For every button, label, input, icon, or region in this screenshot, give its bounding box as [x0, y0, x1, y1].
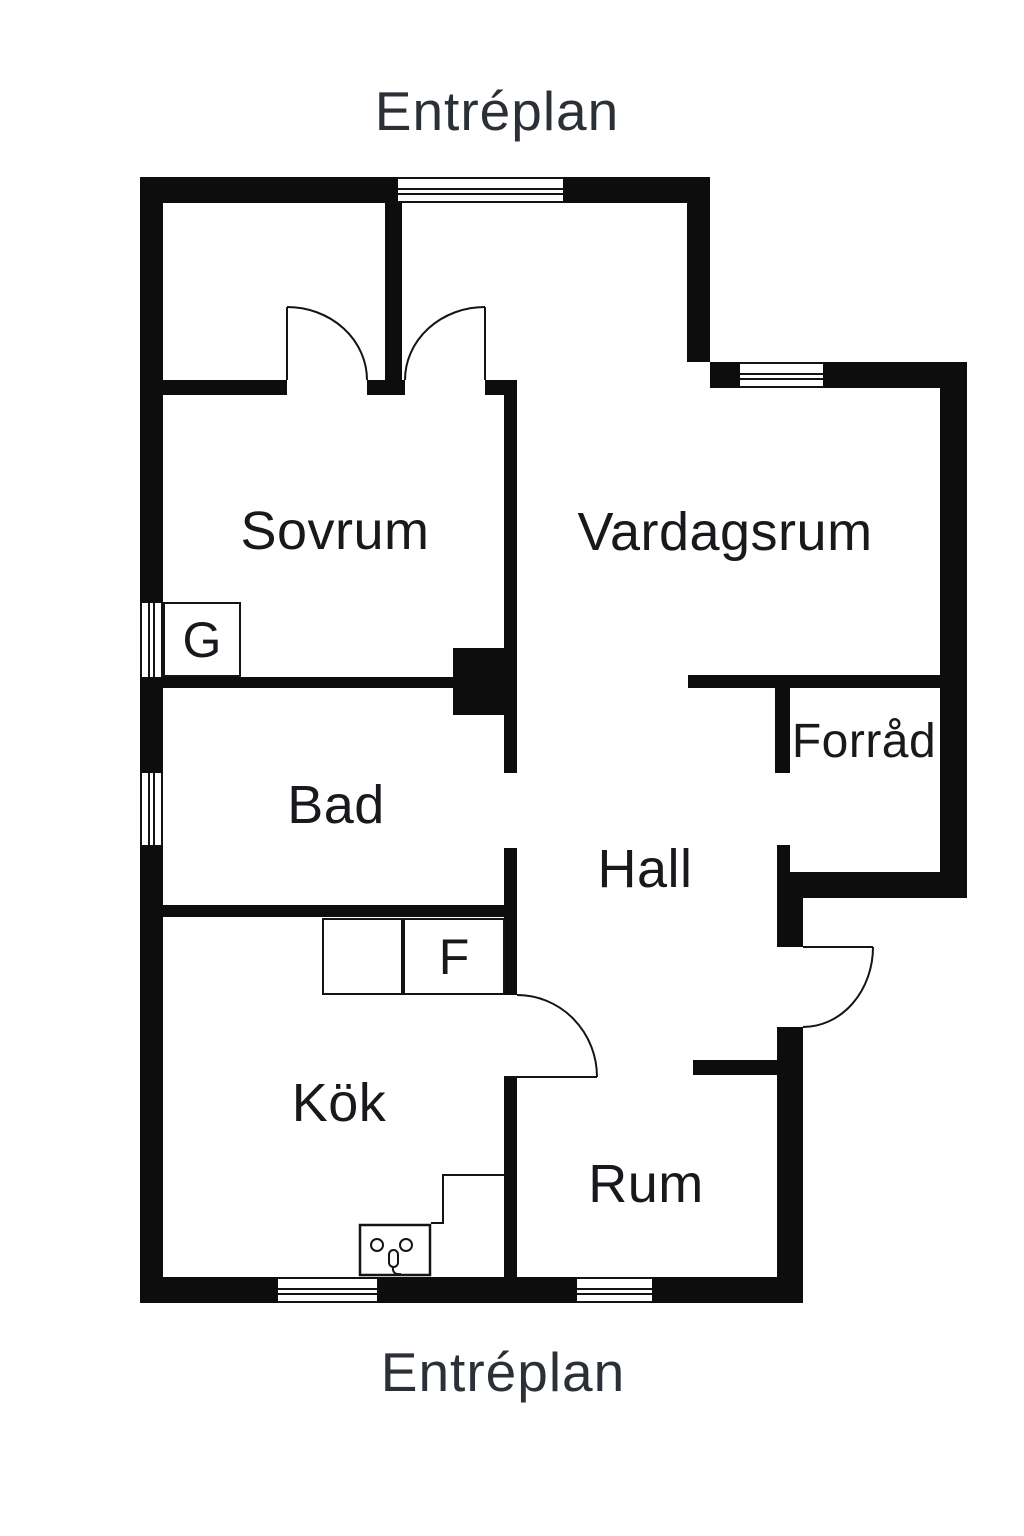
- room-label-bad: Bad: [287, 778, 385, 832]
- floor-title-top: Entréplan: [375, 84, 619, 139]
- floor-title-bottom: Entréplan: [381, 1345, 625, 1400]
- wall-livingroom-bottom: [688, 675, 942, 688]
- wall-kitchen-right-lower: [504, 1077, 517, 1277]
- kitchen-unit-box: [322, 918, 403, 995]
- room-label-hall: Hall: [597, 842, 692, 896]
- wall-bedroom-bath-divider: [163, 677, 453, 688]
- wall-bath-kitchen-divider: [163, 905, 505, 917]
- wall-room-top-stub: [693, 1060, 777, 1075]
- wall-storage-bottom: [777, 872, 967, 898]
- window: [398, 177, 563, 203]
- wall-vestibule: [385, 180, 402, 395]
- window: [140, 603, 163, 677]
- wall-storage-left-upper: [775, 688, 790, 773]
- door-arc-entrance: [803, 947, 873, 1027]
- wall-right-lower-b: [777, 1027, 803, 1303]
- wall-bath-right-upper: [504, 715, 517, 773]
- room-label-rum: Rum: [588, 1157, 704, 1211]
- room-label-forrad: Forråd: [792, 718, 936, 766]
- fridge-box: F: [403, 918, 505, 995]
- wall-bedroom-right: [504, 382, 517, 648]
- wall-left-lower: [140, 845, 163, 1303]
- wall-top-notch: [687, 203, 710, 362]
- window: [140, 773, 163, 845]
- sink-icon: [360, 1225, 430, 1275]
- window: [740, 362, 823, 388]
- wall-livingroom-top-a: [710, 362, 740, 388]
- floor-plan: Entréplan Entréplan: [0, 0, 1024, 1536]
- wall-top-left: [140, 177, 398, 203]
- wall-left-middle: [140, 677, 163, 773]
- window: [278, 1277, 377, 1303]
- wardrobe-label: G: [183, 611, 222, 669]
- room-label-vardagsrum: Vardagsrum: [577, 505, 872, 559]
- door-arc-bedroom-right: [405, 307, 485, 380]
- wall-top-right: [563, 177, 710, 203]
- room-label-sovrum: Sovrum: [240, 504, 429, 558]
- window: [577, 1277, 652, 1303]
- wall-bottom-middle: [377, 1277, 577, 1303]
- wall-kitchen-right-upper: [504, 905, 517, 995]
- wall-storage-left-lower: [777, 845, 790, 872]
- wall-livingroom-top-b: [823, 362, 967, 388]
- wall-right-upper: [940, 388, 967, 898]
- wall-bath-right-lower: [504, 848, 517, 905]
- fridge-label: F: [439, 928, 470, 986]
- wall-left-upper: [140, 177, 163, 603]
- kitchen-counter-line: [431, 1175, 505, 1223]
- wall-column-block: [453, 648, 517, 715]
- wall-right-lower-a: [777, 898, 803, 947]
- wall-bedroom-top-a: [163, 380, 287, 395]
- room-label-kok: Kök: [292, 1076, 387, 1130]
- wardrobe-box: G: [163, 602, 241, 677]
- door-arc-kitchen: [504, 995, 597, 1077]
- wall-bedroom-top-b: [367, 380, 405, 395]
- wall-bottom-left: [140, 1277, 278, 1303]
- door-arc-bedroom-left: [287, 307, 367, 380]
